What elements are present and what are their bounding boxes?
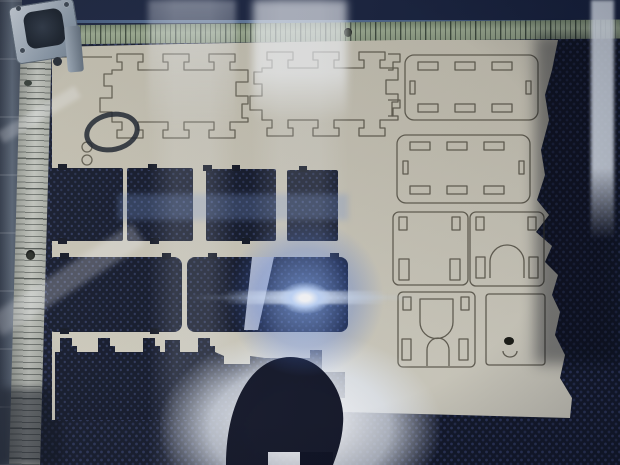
- silhouette-shoulder: [300, 452, 333, 465]
- laser-flare-core: [279, 282, 331, 314]
- photo-laser-cutter: [0, 0, 620, 465]
